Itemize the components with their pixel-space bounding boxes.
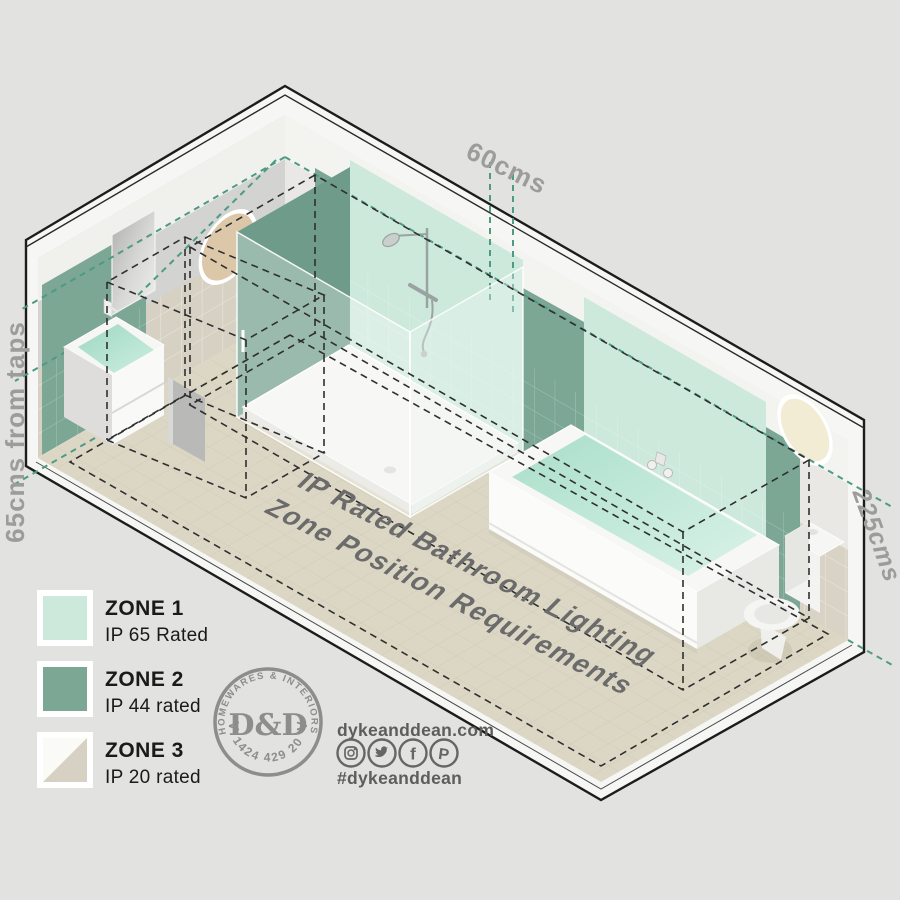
- zone2-label: ZONE 2: [105, 668, 184, 691]
- legend-item-zone3: ZONE 3 IP 20 rated: [40, 735, 201, 788]
- bathroom-zone-diagram: 60cms 65cms from taps 225cms IP Rated Ba…: [0, 0, 900, 900]
- website-text: dykeanddean.com: [337, 720, 494, 740]
- zone2-swatch: [40, 664, 90, 714]
- logo-arrow-left: <: [227, 716, 240, 735]
- legend-item-zone1: ZONE 1 IP 65 Rated: [40, 593, 208, 646]
- hashtag-text: #dykeanddean: [337, 768, 462, 788]
- zone1-rating: IP 65 Rated: [105, 625, 208, 646]
- measurement-left-65cms: 65cms from taps: [0, 321, 30, 543]
- zone1-swatch: [40, 593, 90, 643]
- zone3-rating: IP 20 rated: [105, 767, 201, 788]
- logo-arrow-right: >: [295, 716, 308, 735]
- facebook-glyph: f: [410, 745, 416, 764]
- legend-item-zone2: ZONE 2 IP 44 rated: [40, 664, 201, 717]
- zone3-label: ZONE 3: [105, 739, 184, 762]
- zone1-label: ZONE 1: [105, 597, 184, 620]
- zone2-rating: IP 44 rated: [105, 696, 201, 717]
- infographic-poster: 60cms 65cms from taps 225cms IP Rated Ba…: [0, 0, 900, 900]
